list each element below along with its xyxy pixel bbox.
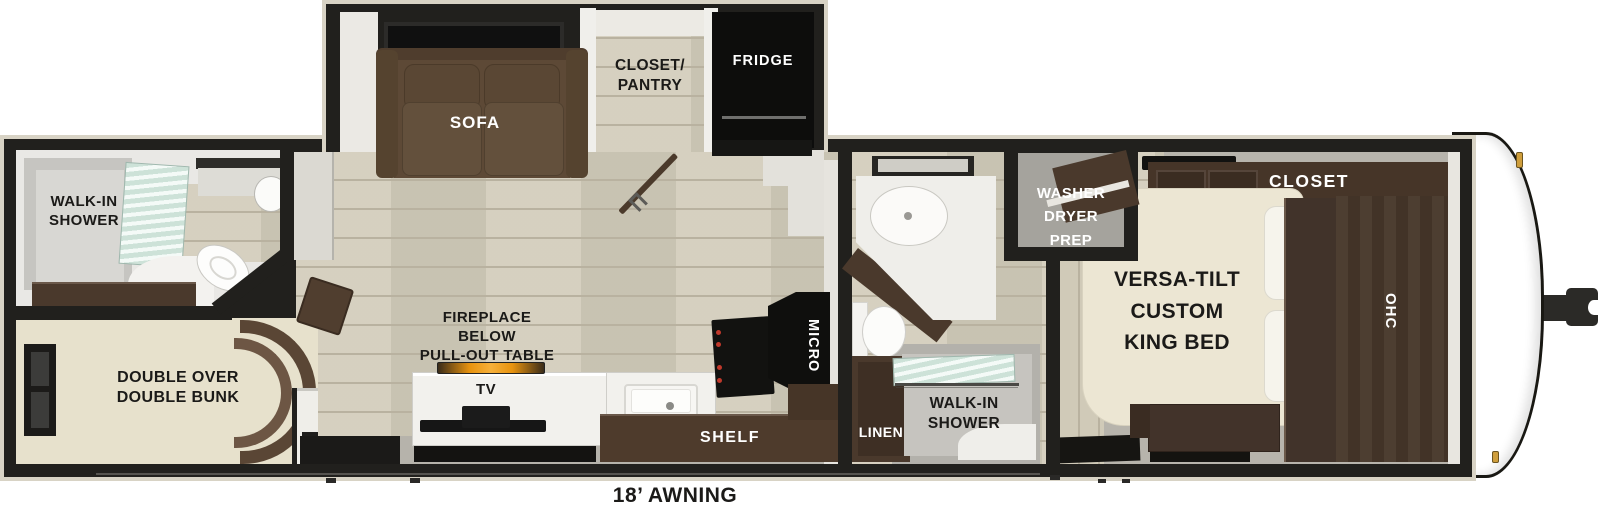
hitch-coupler-notch <box>1588 300 1600 315</box>
fireplace-label: FIREPLACE BELOW PULL-OUT TABLE <box>402 308 572 366</box>
closet-pantry-label: CLOSET/ PANTRY <box>596 56 704 96</box>
fridge <box>712 12 814 148</box>
bed-foot-cabinet <box>1130 404 1150 438</box>
micro-label: MICRO <box>800 304 822 388</box>
tv-label: TV <box>450 380 522 399</box>
kitchen-faucet <box>666 402 674 410</box>
range-cooktop <box>711 316 774 398</box>
mid-shower-glass <box>893 354 1016 386</box>
sofa-arm-left <box>376 50 398 178</box>
wdp-label: WASHER DRYER PREP <box>1010 182 1132 252</box>
rear-shower-label: WALK-IN SHOWER <box>28 192 140 230</box>
fridge-base-counter <box>712 140 812 156</box>
closet-pantry-back-lining <box>596 10 704 36</box>
wall-bath-bunk <box>16 306 232 320</box>
living-left-cabinet <box>294 152 334 260</box>
awning-arm-tick-4 <box>1098 479 1106 483</box>
bed-foot-bench <box>1148 404 1280 452</box>
fridge-label: FRIDGE <box>712 52 814 71</box>
king-bed-label: VERSA-TILT CUSTOM KING BED <box>1085 264 1269 359</box>
bunk-label: DOUBLE OVER DOUBLE BUNK <box>88 368 268 409</box>
range-knob-2 <box>716 342 721 347</box>
mid-bath-mirror-inner <box>878 159 968 172</box>
entry-step-mat-1 <box>300 436 400 464</box>
shelf-label: SHELF <box>660 428 800 448</box>
awning-rail-line <box>96 473 1040 475</box>
tv-unit <box>462 406 510 428</box>
marker-light-bottom <box>1492 451 1499 463</box>
slideout-left-lining <box>340 12 378 152</box>
range-knob-1 <box>716 330 721 335</box>
linen-label: LINEN <box>848 424 914 442</box>
mid-bath-toilet <box>862 306 906 358</box>
mid-bath-sink-drain <box>904 212 912 220</box>
sofa-arm-right <box>566 50 588 178</box>
rv-floorplan: WALK-IN SHOWER DOUBLE OVER DOUBLE BUNK S… <box>0 0 1600 508</box>
mid-shower-label: WALK-IN SHOWER <box>906 394 1022 434</box>
awning-arm-tick-2 <box>410 478 420 483</box>
bedroom-closet-label: CLOSET <box>1244 170 1374 192</box>
awning-arm-tick-3 <box>1050 475 1060 480</box>
ohc-label: OHC <box>1374 276 1400 346</box>
bed-head-wardrobe <box>1284 198 1336 462</box>
kitchen-sink-basin <box>631 389 691 413</box>
mid-shower-rod <box>895 383 1019 386</box>
range-knob-4 <box>717 378 722 383</box>
slideout-right-lining2 <box>788 186 824 236</box>
wall-kitchen-bath <box>838 152 852 464</box>
fridge-shelf-line <box>722 116 806 119</box>
awning-label: 18’ AWNING <box>558 483 792 508</box>
awning-arm-tick-5 <box>1122 479 1130 483</box>
wall-bath-bedroom <box>1046 250 1060 464</box>
range-knob-3 <box>717 365 722 370</box>
marker-light-top <box>1516 152 1523 168</box>
awning-arm-tick-1 <box>326 478 336 483</box>
bunk-window-pane-top <box>31 352 49 386</box>
bedroom-floor-mat-1 <box>1058 435 1141 464</box>
bunk-window-pane-bottom <box>31 392 49 428</box>
bedroom-front-lining <box>1448 152 1460 464</box>
shelf-cabinet-column <box>788 384 838 420</box>
sofa-label: SOFA <box>425 112 525 134</box>
entry-step-mat-2 <box>414 446 596 462</box>
